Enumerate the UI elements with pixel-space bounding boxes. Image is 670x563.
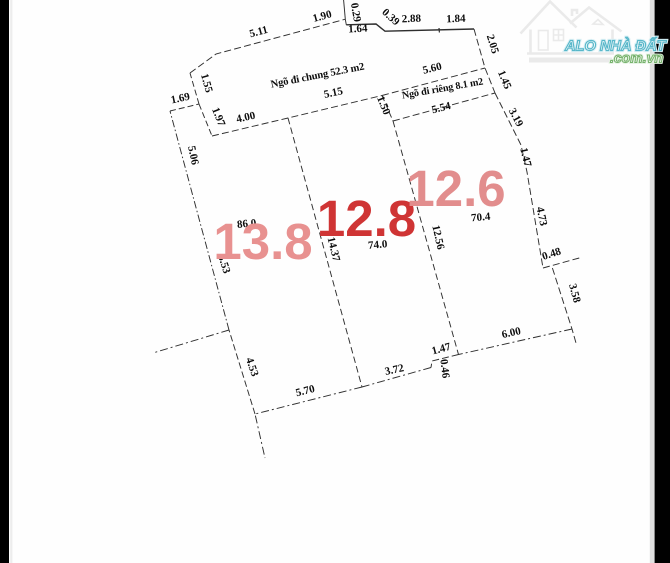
svg-text:12.8: 12.8	[317, 190, 416, 247]
svg-text:.com.vn: .com.vn	[610, 50, 663, 66]
svg-text:1.84: 1.84	[446, 13, 466, 26]
svg-text:2.88: 2.88	[402, 13, 422, 26]
svg-text:12.6: 12.6	[406, 160, 505, 217]
svg-text:1.64: 1.64	[348, 22, 368, 35]
svg-text:13.8: 13.8	[213, 213, 312, 270]
svg-text:0.46: 0.46	[437, 358, 451, 379]
